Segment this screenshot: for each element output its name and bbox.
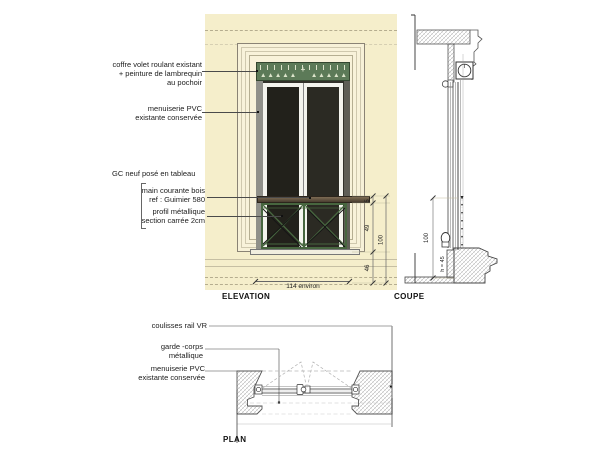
label-profil-l2: section carrée 2cm [95,216,205,225]
coupe-dim-total: 100 [424,232,430,243]
label-coffre: coffre volet roulant existant + peinture… [60,60,202,87]
leader-profil-dot [281,215,284,218]
label-menuiserie-plan: menuiserie PVC existante conservée [90,364,205,382]
window-sill [250,249,360,255]
label-main-courante-l1: main courante bois [95,186,205,195]
label-profil-l1: profil métallique [95,207,205,216]
leader-menuiserie-elev-dot [257,111,260,114]
label-menuiserie-elev-l2: existante conservée [80,113,202,122]
plan-drawing [205,318,405,448]
label-garde-corps: garde -corps métallique [110,342,203,360]
label-coffre-l3: au pochoir [60,78,202,87]
elevation-level-dashed-line-top [205,30,397,31]
elevation-title: ELEVATION [222,292,270,301]
label-menuiserie-elev-l1: menuiserie PVC [80,104,202,113]
width-dim-text: 114 environ [256,283,350,290]
label-gc-neuf: GC neuf posé en tableau [112,169,232,178]
coupe-allege [447,250,454,278]
architectural-drawing-sheet: ▲▲▲▲▲ ▲▲▲▲▲ + 5 [0,0,600,450]
guardrail-elevation [261,203,347,250]
lambrequin-center-motif: + [301,66,306,74]
leader-coffre [202,71,257,72]
label-garde-corps-l1: garde -corps [110,342,203,351]
coupe-section-drawing: 100 h = 45 [400,10,500,300]
label-coffre-l1: coffre volet roulant existant [60,60,202,69]
coupe-dim-sill-height: h = 45 [440,256,446,271]
coupe-window-frame-lines [448,54,463,250]
plan-title: PLAN [223,435,246,444]
label-menuiserie-plan-l2: existante conservée [90,373,205,382]
coupe-sill-molding [454,248,497,283]
plan-sash-swing-dashed [262,362,352,389]
label-coffre-l2: + peinture de lambrequin [60,69,202,78]
coupe-wall-line-top [411,15,415,70]
label-main-courante: main courante bois ref : Guimier 580 [95,186,205,204]
label-coulisses: coulisses rail VR [110,321,207,330]
label-garde-corps-l2: métallique [110,351,203,360]
coupe-lintel [417,30,470,44]
dim-handrail: 5 [365,199,371,203]
lambrequin-triangles-right: ▲▲▲▲▲ [311,73,348,79]
leader-coffre-dot [256,70,259,73]
dim-total: 100 [379,234,385,245]
label-main-courante-l2: ref : Guimier 580 [95,195,205,204]
dim-allege: 46 [365,264,371,271]
width-dim-line [256,281,350,282]
label-profil: profil métallique section carrée 2cm [95,207,205,225]
elevation-dimension-chain: 5 49 46 100 [352,190,397,290]
coupe-title: COUPE [394,292,424,301]
leader-main-courante-dot [309,197,312,200]
label-menuiserie-elev: menuiserie PVC existante conservée [80,104,202,122]
dim-railing: 49 [365,224,371,231]
label-menuiserie-plan-l1: menuiserie PVC [90,364,205,373]
leader-main-courante [207,197,310,198]
coupe-handrail-base [442,242,449,247]
leader-menuiserie-elev [202,112,258,113]
lambrequin: ▲▲▲▲▲ ▲▲▲▲▲ + [256,62,350,81]
coupe-shutter-rail [448,44,454,82]
lambrequin-triangles-left: ▲▲▲▲▲ [260,73,297,79]
leader-profil [207,216,282,217]
